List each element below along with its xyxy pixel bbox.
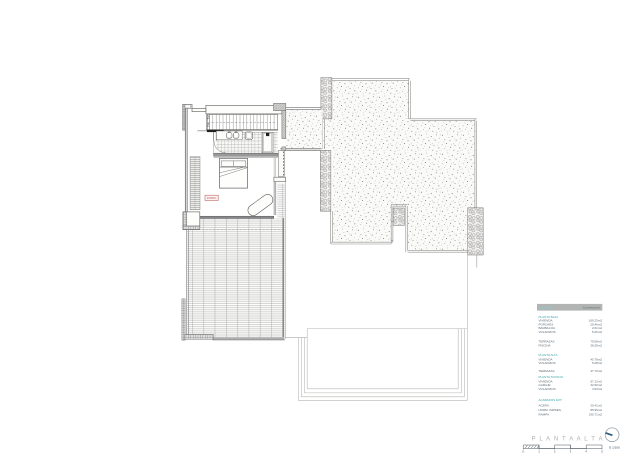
svg-text:Superficies: Superficies	[539, 306, 554, 310]
svg-text:38.28m2: 38.28m2	[590, 343, 602, 347]
svg-text:Construcción: Construcción	[583, 306, 601, 310]
svg-text:HORM. IMPRES.: HORM. IMPRES.	[539, 408, 562, 412]
svg-text:PLANTA ALTA: PLANTA ALTA	[539, 353, 558, 357]
svg-text:5.06m2: 5.06m2	[592, 330, 602, 334]
svg-text:4.53m2: 4.53m2	[592, 387, 602, 391]
svg-text:PISCINA: PISCINA	[539, 343, 551, 347]
svg-text:TERRAZAS: TERRAZAS	[539, 369, 555, 373]
svg-text:ACABADOS EXT.: ACABADOS EXT.	[539, 398, 563, 402]
svg-text:VOLADIZOS: VOLADIZOS	[539, 361, 556, 365]
svg-text:VOLADIZOS: VOLADIZOS	[539, 330, 556, 334]
svg-text:5.08m2: 5.08m2	[592, 361, 602, 365]
svg-text:85.95m2: 85.95m2	[590, 408, 602, 412]
svg-text:P L A N T A A L T A: P L A N T A A L T A	[532, 436, 603, 442]
svg-text:VOLADIZOS: VOLADIZOS	[539, 387, 556, 391]
svg-text:E 1/100: E 1/100	[609, 445, 620, 449]
svg-text:20.41m2: 20.41m2	[590, 403, 602, 407]
svg-text:PLANTA SOTANO: PLANTA SOTANO	[539, 375, 564, 379]
svg-text:DORM.: DORM.	[207, 196, 217, 200]
svg-text:RAMPA: RAMPA	[539, 412, 549, 416]
svg-text:47.70m2: 47.70m2	[590, 369, 602, 373]
svg-text:ACERA: ACERA	[539, 403, 549, 407]
svg-text:195.71m2: 195.71m2	[589, 412, 603, 416]
